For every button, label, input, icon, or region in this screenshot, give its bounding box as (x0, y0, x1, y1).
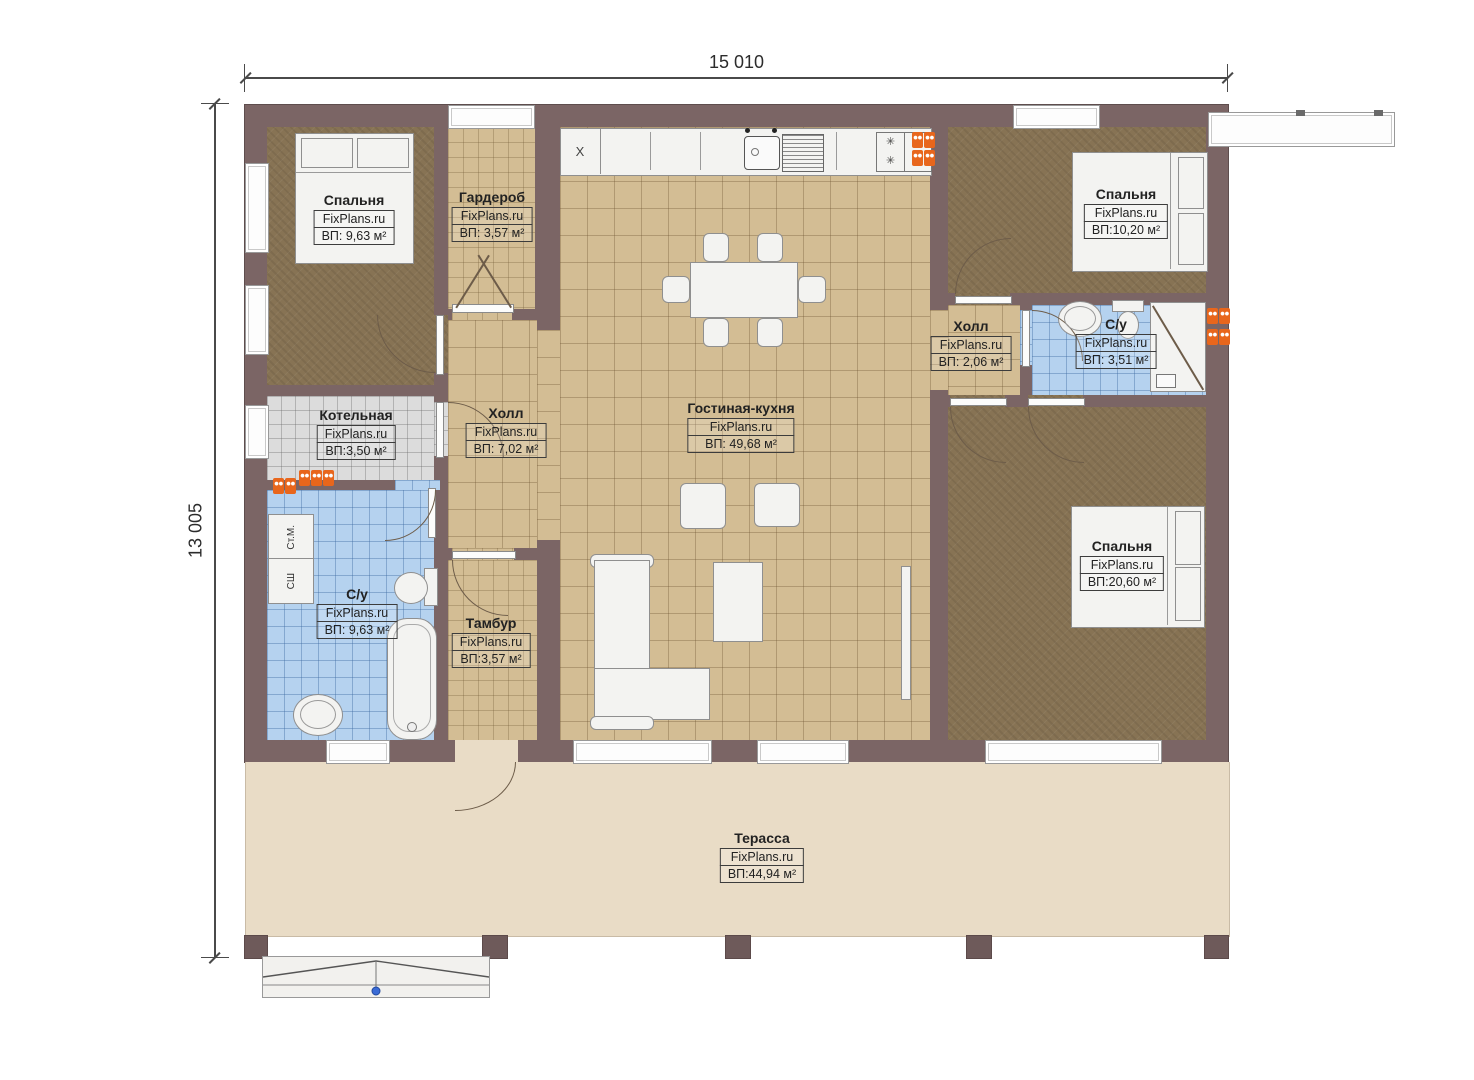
window (757, 740, 849, 764)
room-label-terrace: Терасса FixPlans.ru ВП:44,94 м² (720, 830, 804, 883)
room-area: ВП: 3,51 м² (1076, 351, 1157, 369)
room-brand: FixPlans.ru (452, 633, 531, 651)
room-brand: FixPlans.ru (1080, 556, 1164, 574)
room-label-bedroom-bottom-right: Спальня FixPlans.ru ВП:20,60 м² (1080, 538, 1164, 591)
sofa-armrest (590, 716, 654, 730)
window (1013, 105, 1100, 129)
radiator (323, 470, 334, 486)
shower-tray (1156, 374, 1176, 388)
room-brand: FixPlans.ru (720, 848, 804, 866)
stove-left: ✳ ✳ (876, 132, 905, 172)
window (985, 740, 1162, 764)
room-label-bathroom-right: С/у FixPlans.ru ВП: 3,51 м² (1076, 316, 1157, 369)
chair (703, 318, 729, 347)
room-brand: FixPlans.ru (317, 425, 396, 443)
dimension-width-label: 15 010 (245, 52, 1228, 73)
room-area: ВП: 9,63 м² (317, 621, 398, 639)
room-name: Терасса (720, 830, 804, 846)
pillow (1178, 213, 1204, 265)
burner-icon: ✳ (886, 155, 895, 168)
radiator (311, 470, 322, 486)
dimension-line-top (245, 77, 1228, 79)
room-brand: FixPlans.ru (931, 336, 1012, 354)
room-area: ВП:20,60 м² (1080, 573, 1164, 591)
faucet-dot (772, 128, 777, 133)
room-area: ВП: 3,57 м² (452, 224, 533, 242)
room-brand: FixPlans.ru (466, 423, 547, 441)
window (448, 105, 535, 129)
chair (757, 233, 783, 262)
radiator (1219, 329, 1230, 345)
radiator (299, 470, 310, 486)
door-leaf (1022, 310, 1030, 367)
room-label-wardrobe: Гардероб FixPlans.ru ВП: 3,57 м² (452, 189, 533, 242)
pillow (301, 138, 353, 168)
room-area: ВП: 2,06 м² (931, 353, 1012, 371)
door-leaf (950, 398, 1007, 406)
chair (662, 276, 690, 303)
terrace-steps (262, 956, 490, 998)
dining-table (690, 262, 798, 318)
step-marker-dot (372, 987, 380, 995)
blanket-line (1167, 507, 1168, 625)
washing-machine: Ст.М. (268, 514, 314, 560)
room-name: Холл (466, 405, 547, 421)
kitchen-unit-x: X (560, 128, 601, 174)
floor-plan: 15 010 13 005 (0, 0, 1474, 1080)
terrace-post (1205, 936, 1228, 958)
room-name: Холл (931, 318, 1012, 334)
blanket-line (1170, 153, 1171, 269)
window (245, 405, 269, 459)
counter-divider (836, 132, 837, 170)
bathtub-inner (393, 624, 431, 732)
chair (798, 276, 826, 303)
room-area: ВП: 7,02 м² (466, 440, 547, 458)
room-name: Тамбур (452, 615, 531, 631)
bathtub-drain (407, 722, 417, 732)
room-name: Спальня (1084, 186, 1168, 202)
room-label-vestibule: Тамбур FixPlans.ru ВП:3,57 м² (452, 615, 531, 668)
room-label-bedroom-top-right: Спальня FixPlans.ru ВП:10,20 м² (1084, 186, 1168, 239)
room-name: Котельная (317, 407, 396, 423)
window-bay-top-right (1208, 112, 1395, 147)
room-brand: FixPlans.ru (1084, 204, 1168, 222)
chair (703, 233, 729, 262)
room-brand: FixPlans.ru (317, 604, 398, 622)
window-mark (1296, 110, 1305, 116)
room-name: Гардероб (452, 189, 533, 205)
counter-divider (650, 132, 651, 170)
radiator (285, 478, 296, 494)
window (245, 163, 269, 253)
pillow (1178, 157, 1204, 209)
dimension-line-left (214, 104, 216, 958)
room-label-living-kitchen: Гостиная-кухня FixPlans.ru ВП: 49,68 м² (687, 400, 794, 453)
radiator (912, 132, 923, 148)
window-mark (1374, 110, 1383, 116)
dimension-height-label: 13 005 (186, 481, 207, 581)
steps-ramp-lines (263, 957, 489, 997)
radiator (924, 132, 935, 148)
washing-machine-label: Ст.М. (286, 525, 297, 550)
room-name: Спальня (1080, 538, 1164, 554)
room-brand: FixPlans.ru (452, 207, 533, 225)
coffee-table (713, 562, 763, 642)
radiator (1207, 308, 1218, 324)
door-leaf (955, 296, 1012, 304)
kitchen-sink (744, 136, 780, 170)
room-area: ВП:44,94 м² (720, 865, 804, 883)
room-label-hall-right: Холл FixPlans.ru ВП: 2,06 м² (931, 318, 1012, 371)
door-leaf (452, 551, 516, 559)
door-leaf (452, 304, 514, 313)
sink-drain (751, 148, 759, 156)
room-name: С/у (1076, 316, 1157, 332)
terrace-post (245, 936, 267, 958)
dryer-cabinet-label: СШ (286, 573, 297, 589)
armchair (754, 483, 800, 527)
window (573, 740, 712, 764)
room-label-hall-left: Холл FixPlans.ru ВП: 7,02 м² (466, 405, 547, 458)
sink-drainboard (782, 134, 824, 172)
burner-icon: ✳ (886, 136, 895, 149)
room-name: Гостиная-кухня (687, 400, 794, 416)
armchair (680, 483, 726, 529)
room-area: ВП: 49,68 м² (687, 435, 794, 453)
door-leaf (436, 315, 444, 375)
radiator (912, 150, 923, 166)
room-label-bedroom-top-left: Спальня FixPlans.ru ВП: 9,63 м² (314, 192, 395, 245)
terrace-post (483, 936, 507, 958)
radiator (924, 150, 935, 166)
room-label-bathroom-left: С/у FixPlans.ru ВП: 9,63 м² (317, 586, 398, 639)
sliding-panel (901, 566, 911, 700)
window (326, 740, 390, 764)
window (245, 285, 269, 355)
pillow (357, 138, 409, 168)
radiator (273, 478, 284, 494)
pillow (1175, 567, 1201, 621)
room-brand: FixPlans.ru (687, 418, 794, 436)
room-area: ВП: 9,63 м² (314, 227, 395, 245)
blanket-line (296, 172, 411, 173)
room-brand: FixPlans.ru (1076, 334, 1157, 352)
door-leaf (436, 402, 444, 458)
room-name: С/у (317, 586, 398, 602)
counter-divider (700, 132, 701, 170)
entrance-door-opening (455, 740, 518, 762)
room-area: ВП:3,50 м² (317, 442, 396, 460)
faucet-dot (745, 128, 750, 133)
room-area: ВП:10,20 м² (1084, 221, 1168, 239)
terrace-post (967, 936, 991, 958)
room-area: ВП:3,57 м² (452, 650, 531, 668)
door-leaf (1028, 398, 1085, 406)
toilet-bowl (394, 572, 428, 604)
dryer-cabinet: СШ (268, 558, 314, 604)
radiator (1207, 329, 1218, 345)
room-brand: FixPlans.ru (314, 210, 395, 228)
sofa-chaise (594, 668, 710, 720)
radiator (1219, 308, 1230, 324)
terrace-post (726, 936, 750, 958)
pillow (1175, 511, 1201, 565)
room-name: Спальня (314, 192, 395, 208)
sink-inner (300, 700, 336, 729)
chair (757, 318, 783, 347)
room-label-boiler: Котельная FixPlans.ru ВП:3,50 м² (317, 407, 396, 460)
